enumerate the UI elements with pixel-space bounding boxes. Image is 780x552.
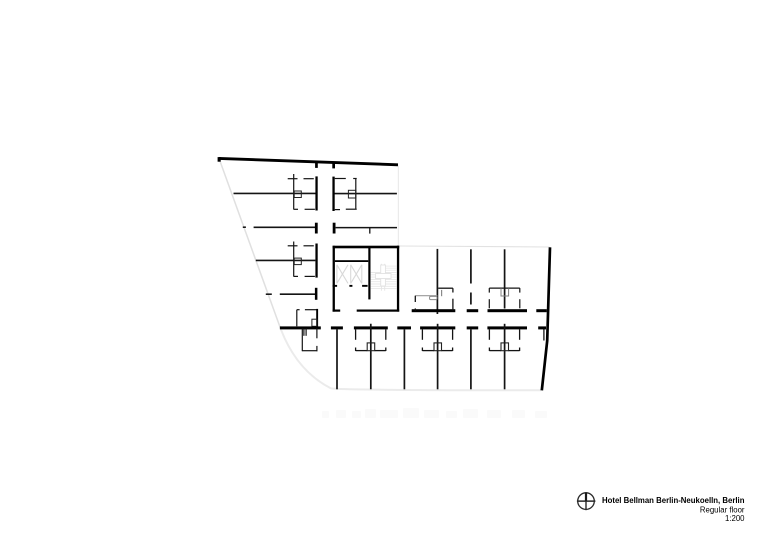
svg-text:1:200: 1:200 — [725, 514, 745, 523]
svg-text:Hotel Bellman Berlin-Neukoelln: Hotel Bellman Berlin-Neukoelln, Berlin — [602, 496, 745, 505]
